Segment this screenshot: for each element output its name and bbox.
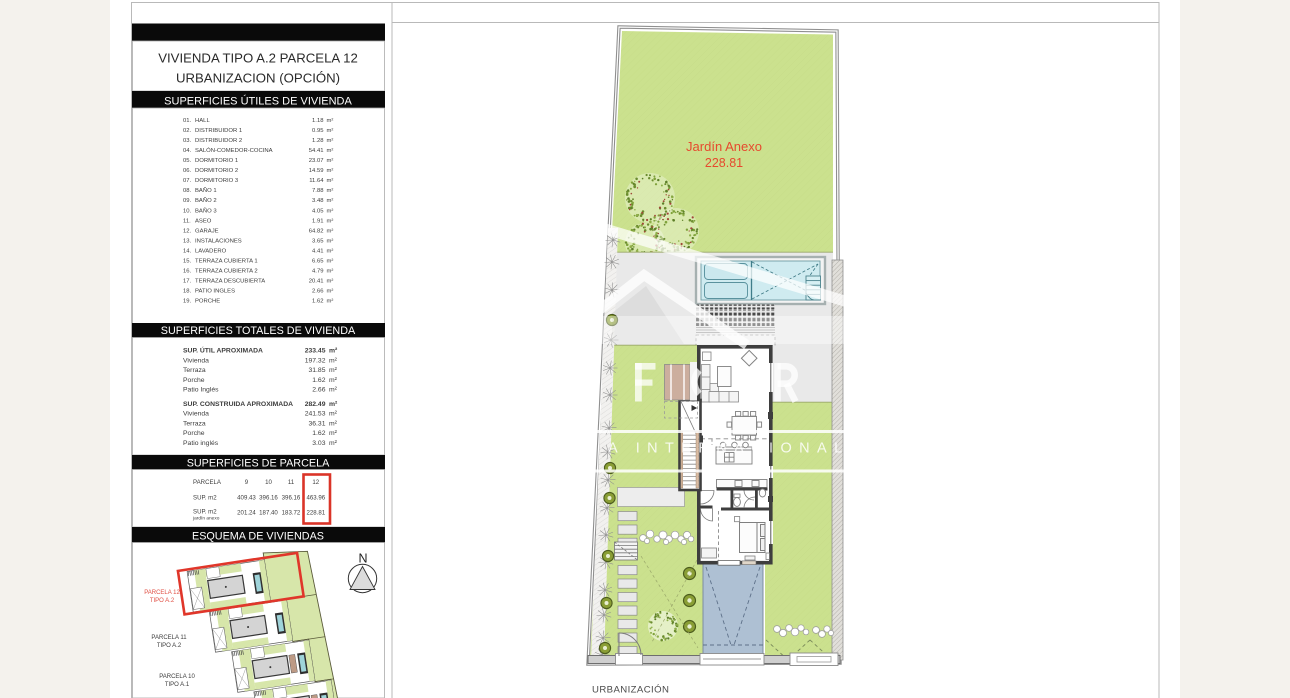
svg-text:282.49: 282.49	[305, 401, 326, 408]
svg-text:SUP. CONSTRUIDA APROXIMADA: SUP. CONSTRUIDA APROXIMADA	[183, 401, 293, 408]
svg-text:PARCELA 11: PARCELA 11	[151, 635, 187, 641]
svg-text:409.43: 409.43	[237, 495, 256, 502]
svg-text:Porche: Porche	[183, 377, 205, 384]
svg-text:228.81: 228.81	[306, 510, 325, 517]
svg-text:19.: 19.	[183, 299, 192, 305]
svg-text:m²: m²	[327, 248, 334, 254]
svg-text:10.: 10.	[183, 208, 192, 214]
svg-text:11: 11	[288, 479, 295, 486]
svg-text:197.32: 197.32	[305, 357, 326, 364]
svg-text:04.: 04.	[183, 148, 192, 154]
svg-text:URBANIZACION (OPCIÓN): URBANIZACION (OPCIÓN)	[176, 71, 340, 86]
svg-text:m²: m²	[327, 208, 334, 214]
svg-text:HALL: HALL	[195, 118, 210, 124]
svg-text:233.45: 233.45	[305, 348, 326, 355]
svg-text:396.16: 396.16	[259, 495, 278, 502]
svg-text:m²: m²	[327, 178, 334, 184]
svg-text:m²: m²	[329, 357, 338, 364]
svg-text:m²: m²	[327, 279, 334, 285]
svg-text:396.16: 396.16	[282, 495, 301, 502]
svg-text:m²: m²	[327, 218, 334, 224]
svg-text:15.: 15.	[183, 258, 192, 264]
svg-text:m²: m²	[327, 238, 334, 244]
svg-text:URBANIZACIÓN: URBANIZACIÓN	[592, 685, 669, 696]
svg-text:17.: 17.	[183, 279, 192, 285]
svg-text:TIPO A.1: TIPO A.1	[165, 682, 190, 688]
svg-text:m²: m²	[329, 430, 338, 437]
svg-text:PATIO INGLES: PATIO INGLES	[195, 289, 235, 295]
svg-text:1.62: 1.62	[312, 377, 325, 384]
svg-text:DISTRIBUIDOR 1: DISTRIBUIDOR 1	[195, 128, 242, 134]
svg-text:64.82: 64.82	[309, 228, 324, 234]
svg-text:0.95: 0.95	[312, 128, 324, 134]
svg-text:Jardín Anexo: Jardín Anexo	[686, 139, 762, 154]
svg-text:ESQUEMA DE VIVIENDAS: ESQUEMA DE VIVIENDAS	[192, 530, 324, 542]
svg-text:m²: m²	[327, 158, 334, 164]
svg-text:m²: m²	[327, 188, 334, 194]
svg-text:2.66: 2.66	[312, 289, 324, 295]
svg-text:m²: m²	[327, 228, 334, 234]
svg-text:01.: 01.	[183, 118, 192, 124]
svg-text:4.05: 4.05	[312, 208, 324, 214]
svg-text:14.59: 14.59	[309, 168, 324, 174]
svg-text:Patio inglés: Patio inglés	[183, 440, 219, 447]
svg-text:7.88: 7.88	[312, 188, 324, 194]
svg-text:m²: m²	[329, 411, 338, 418]
svg-text:PARCELA: PARCELA	[193, 479, 222, 486]
svg-text:201.24: 201.24	[237, 510, 256, 517]
svg-text:TERRAZA DESCUBIERTA: TERRAZA DESCUBIERTA	[195, 279, 265, 285]
svg-text:187.40: 187.40	[259, 510, 278, 517]
svg-text:11.64: 11.64	[309, 178, 324, 184]
svg-text:m²: m²	[327, 268, 334, 274]
svg-text:Terraza: Terraza	[183, 420, 206, 427]
svg-text:DISTRIBUIDOR 2: DISTRIBUIDOR 2	[195, 138, 242, 144]
svg-text:02.: 02.	[183, 128, 192, 134]
svg-text:TERRAZA CUBIERTA 2: TERRAZA CUBIERTA 2	[195, 268, 258, 274]
svg-text:BAÑO 3: BAÑO 3	[195, 207, 217, 214]
svg-text:BAÑO 2: BAÑO 2	[195, 197, 217, 204]
svg-text:11.: 11.	[183, 218, 191, 224]
svg-text:SALÓN-COMEDOR-COCINA: SALÓN-COMEDOR-COCINA	[195, 147, 273, 154]
svg-text:03.: 03.	[183, 138, 192, 144]
svg-text:31.85: 31.85	[308, 367, 325, 374]
svg-text:183.72: 183.72	[282, 510, 301, 517]
svg-text:m²: m²	[327, 128, 334, 134]
svg-text:1.18: 1.18	[312, 118, 324, 124]
svg-text:1.28: 1.28	[312, 138, 324, 144]
svg-text:20.41: 20.41	[309, 279, 324, 285]
svg-text:TERRAZA CUBIERTA 1: TERRAZA CUBIERTA 1	[195, 258, 258, 264]
svg-text:54.41: 54.41	[309, 148, 324, 154]
svg-text:Porche: Porche	[183, 430, 205, 437]
svg-text:228.81: 228.81	[705, 156, 743, 170]
svg-text:m²: m²	[329, 367, 338, 374]
svg-text:09.: 09.	[183, 198, 192, 204]
svg-text:GARAJE: GARAJE	[195, 228, 219, 234]
svg-text:Patio Inglés: Patio Inglés	[183, 387, 219, 394]
svg-text:SUPERFICIES ÚTILES DE VIVIENDA: SUPERFICIES ÚTILES DE VIVIENDA	[164, 94, 352, 107]
svg-text:BAÑO 1: BAÑO 1	[195, 187, 217, 194]
svg-text:VIVIENDA TIPO A.2 PARCELA 12: VIVIENDA TIPO A.2 PARCELA 12	[158, 51, 358, 66]
svg-text:m²: m²	[327, 198, 334, 204]
svg-text:3.65: 3.65	[312, 238, 324, 244]
svg-text:LAVADERO: LAVADERO	[195, 248, 227, 254]
svg-text:2.66: 2.66	[312, 387, 325, 394]
svg-text:DORMITORIO 1: DORMITORIO 1	[195, 158, 238, 164]
svg-text:m²: m²	[329, 401, 338, 408]
svg-text:N: N	[358, 552, 367, 566]
svg-text:07.: 07.	[183, 178, 192, 184]
svg-text:SUP. m2: SUP. m2	[193, 495, 217, 502]
svg-text:A INTERNACIONAL: A INTERNACIONAL	[608, 441, 850, 457]
svg-text:1.62: 1.62	[312, 430, 325, 437]
svg-text:m²: m²	[327, 299, 334, 305]
svg-text:DORMITORIO 3: DORMITORIO 3	[195, 178, 239, 184]
svg-text:INSTALACIONES: INSTALACIONES	[195, 238, 242, 244]
svg-text:m²: m²	[327, 258, 334, 264]
svg-text:4.41: 4.41	[312, 248, 323, 254]
svg-text:m²: m²	[327, 168, 334, 174]
svg-text:m²: m²	[327, 148, 334, 154]
svg-text:14.: 14.	[183, 248, 192, 254]
svg-text:4.79: 4.79	[312, 268, 323, 274]
svg-text:m²: m²	[329, 377, 338, 384]
svg-text:SUP. m2: SUP. m2	[193, 509, 217, 516]
svg-text:jardín anexo: jardín anexo	[192, 516, 220, 522]
svg-text:3.03: 3.03	[312, 440, 325, 447]
svg-text:TIPO A.2: TIPO A.2	[150, 598, 175, 604]
svg-text:TIPO A.2: TIPO A.2	[157, 643, 182, 649]
svg-text:SUP. ÚTIL APROXIMADA: SUP. ÚTIL APROXIMADA	[183, 346, 263, 355]
svg-text:m²: m²	[327, 289, 334, 295]
svg-text:06.: 06.	[183, 168, 192, 174]
svg-text:16.: 16.	[183, 268, 192, 274]
svg-text:08.: 08.	[183, 188, 192, 194]
svg-text:18.: 18.	[183, 289, 192, 295]
svg-text:m²: m²	[327, 138, 334, 144]
svg-text:m²: m²	[327, 118, 334, 124]
svg-text:m²: m²	[329, 440, 338, 447]
svg-text:241.53: 241.53	[305, 411, 326, 418]
svg-text:3.48: 3.48	[312, 198, 324, 204]
svg-text:DORMITORIO 2: DORMITORIO 2	[195, 168, 238, 174]
svg-text:SUPERFICIES TOTALES DE VIVIEND: SUPERFICIES TOTALES DE VIVIENDA	[161, 325, 356, 337]
svg-text:10: 10	[265, 479, 272, 486]
svg-text:23.07: 23.07	[309, 158, 324, 164]
svg-text:m²: m²	[329, 348, 338, 355]
svg-text:1.91: 1.91	[312, 218, 323, 224]
svg-text:Vivienda: Vivienda	[183, 357, 209, 364]
svg-text:m²: m²	[329, 420, 338, 427]
svg-text:05.: 05.	[183, 158, 192, 164]
svg-text:36.31: 36.31	[308, 420, 325, 427]
svg-text:1.62: 1.62	[312, 299, 323, 305]
svg-text:6.65: 6.65	[312, 258, 324, 264]
svg-text:PARCELA 10: PARCELA 10	[159, 674, 195, 680]
svg-text:12.: 12.	[183, 228, 192, 234]
svg-text:ASEO: ASEO	[195, 218, 212, 224]
svg-text:SUPERFICIES DE PARCELA: SUPERFICIES DE PARCELA	[187, 457, 330, 469]
svg-text:Vivienda: Vivienda	[183, 411, 209, 418]
svg-text:463.96: 463.96	[306, 495, 325, 502]
svg-text:Terraza: Terraza	[183, 367, 206, 374]
svg-text:12: 12	[312, 479, 319, 486]
svg-text:PORCHE: PORCHE	[195, 299, 220, 305]
svg-text:m²: m²	[329, 387, 338, 394]
svg-text:PARCELA 12: PARCELA 12	[144, 590, 180, 596]
svg-text:13.: 13.	[183, 238, 192, 244]
